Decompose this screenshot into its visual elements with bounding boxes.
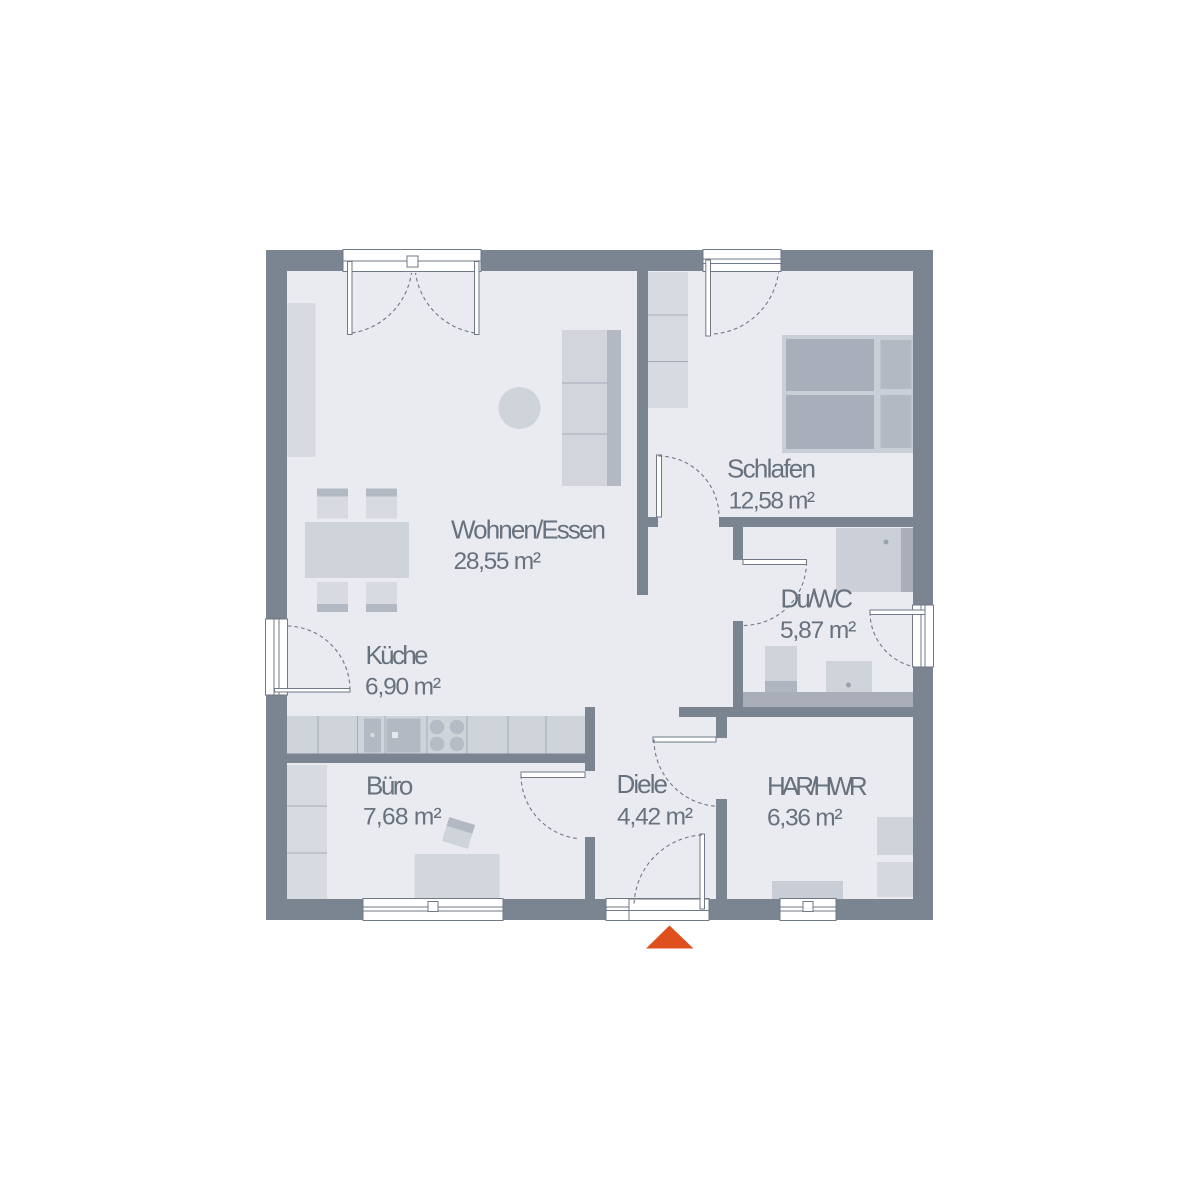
svg-text:HAR/HWR: HAR/HWR	[767, 771, 868, 801]
svg-text:28,55 m²: 28,55 m²	[454, 548, 542, 575]
svg-text:Diele: Diele	[617, 769, 669, 799]
svg-text:7,68 m²: 7,68 m²	[363, 804, 442, 831]
svg-text:Schlafen: Schlafen	[727, 454, 816, 484]
svg-text:Wohnen/Essen: Wohnen/Essen	[451, 515, 606, 545]
svg-text:Du/WC: Du/WC	[781, 584, 854, 614]
svg-text:5,87 m²: 5,87 m²	[780, 617, 856, 644]
svg-text:12,58 m²: 12,58 m²	[729, 488, 816, 515]
svg-text:Büro: Büro	[366, 771, 413, 801]
svg-text:6,90 m²: 6,90 m²	[365, 674, 441, 701]
svg-text:Küche: Küche	[366, 640, 429, 670]
svg-text:6,36 m²: 6,36 m²	[767, 805, 843, 832]
svg-text:4,42 m²: 4,42 m²	[617, 804, 693, 831]
